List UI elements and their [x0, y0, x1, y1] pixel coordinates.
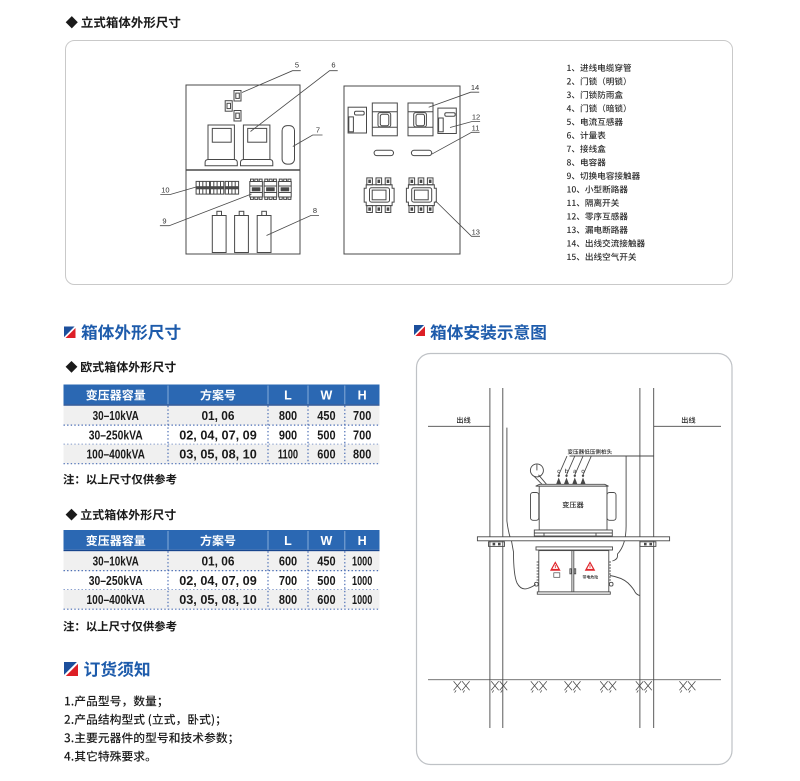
- svg-text:30–250kVA: 30–250kVA: [89, 573, 143, 588]
- svg-text:30–10kVA: 30–10kVA: [93, 554, 140, 569]
- svg-text:450: 450: [317, 408, 335, 423]
- svg-text:6: 6: [331, 61, 335, 70]
- svg-text:500: 500: [317, 573, 335, 588]
- svg-text:L: L: [284, 389, 292, 403]
- svg-text:L: L: [284, 534, 292, 548]
- svg-text:600: 600: [279, 554, 297, 569]
- svg-text:800: 800: [279, 592, 297, 607]
- svg-text:03, 05, 08, 10: 03, 05, 08, 10: [179, 447, 257, 462]
- svg-text:01, 06: 01, 06: [201, 408, 234, 423]
- svg-text:10: 10: [161, 186, 169, 195]
- svg-text:13: 13: [472, 227, 480, 236]
- svg-text:1000: 1000: [352, 592, 372, 607]
- svg-text:30–10kVA: 30–10kVA: [93, 408, 140, 423]
- svg-text:12: 12: [472, 113, 480, 122]
- svg-text:H: H: [358, 389, 367, 403]
- svg-text:11: 11: [472, 123, 480, 132]
- svg-text:1000: 1000: [352, 573, 372, 588]
- svg-text:03, 05, 08, 10: 03, 05, 08, 10: [179, 592, 257, 607]
- svg-text:W: W: [320, 534, 332, 548]
- svg-text:500: 500: [317, 427, 335, 442]
- svg-text:900: 900: [279, 427, 297, 442]
- svg-text:800: 800: [353, 447, 371, 462]
- svg-text:7: 7: [316, 125, 320, 134]
- svg-text:5: 5: [295, 61, 299, 70]
- svg-text:H: H: [358, 534, 367, 548]
- svg-text:100–400kVA: 100–400kVA: [87, 447, 146, 462]
- svg-text:01, 06: 01, 06: [201, 554, 234, 569]
- svg-text:30–250kVA: 30–250kVA: [89, 427, 143, 442]
- svg-text:1000: 1000: [352, 554, 372, 569]
- svg-text:700: 700: [353, 408, 371, 423]
- svg-text:02, 04, 07, 09: 02, 04, 07, 09: [179, 573, 257, 588]
- svg-text:600: 600: [317, 592, 335, 607]
- svg-text:700: 700: [353, 427, 371, 442]
- svg-text:1100: 1100: [278, 447, 298, 462]
- svg-text:9: 9: [162, 217, 166, 226]
- svg-text:14: 14: [471, 83, 479, 92]
- svg-text:100–400kVA: 100–400kVA: [87, 592, 146, 607]
- svg-text:W: W: [320, 389, 332, 403]
- svg-text:700: 700: [279, 573, 297, 588]
- svg-text:600: 600: [317, 447, 335, 462]
- svg-text:8: 8: [313, 206, 317, 215]
- svg-text:450: 450: [317, 554, 335, 569]
- svg-text:02, 04, 07, 09: 02, 04, 07, 09: [179, 427, 257, 442]
- svg-text:800: 800: [279, 408, 297, 423]
